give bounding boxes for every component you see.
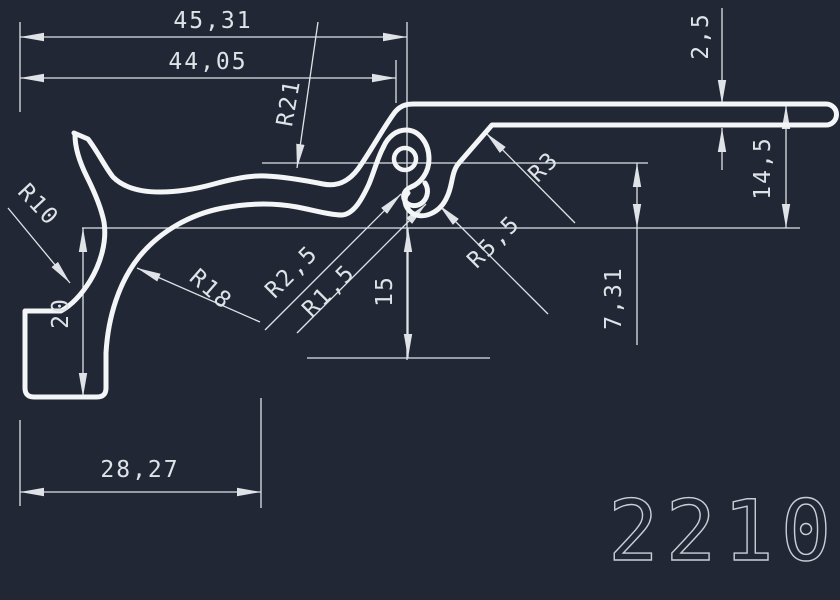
profile-outline — [25, 104, 837, 397]
extension-lines — [20, 22, 800, 508]
dim-total-width-label: 45,31 — [173, 8, 252, 34]
radius-r5-5-label: R5,5 — [462, 210, 525, 273]
profile-lower-contour — [25, 130, 429, 397]
profile-hook-hole — [394, 148, 416, 170]
radius-r18-label: R18 — [184, 264, 237, 315]
technical-drawing: 45,31 44,05 2,5 14,5 7,31 15 20 28,27 R2… — [0, 0, 840, 600]
dim-left-height-label: 20 — [48, 297, 74, 329]
dim-foot-width-label: 28,27 — [100, 457, 179, 483]
dim-flange-thickness-label: 2,5 — [688, 12, 714, 60]
radius-r3-label: R3 — [524, 147, 565, 188]
dim-upper-width-label: 44,05 — [168, 49, 247, 75]
dim-hook-offset-label: 7,31 — [601, 266, 627, 329]
dimension-labels: 45,31 44,05 2,5 14,5 7,31 15 20 28,27 R2… — [12, 8, 776, 483]
cad-viewport: 45,31 44,05 2,5 14,5 7,31 15 20 28,27 R2… — [0, 0, 840, 600]
part-number-text: 2210 — [608, 482, 838, 580]
dim-center-depth-label: 15 — [372, 275, 398, 307]
dim-right-height-label: 14,5 — [750, 136, 776, 199]
radius-r21-label: R21 — [272, 77, 306, 128]
leader-r3 — [486, 133, 575, 223]
dimension-lines — [20, 8, 786, 492]
